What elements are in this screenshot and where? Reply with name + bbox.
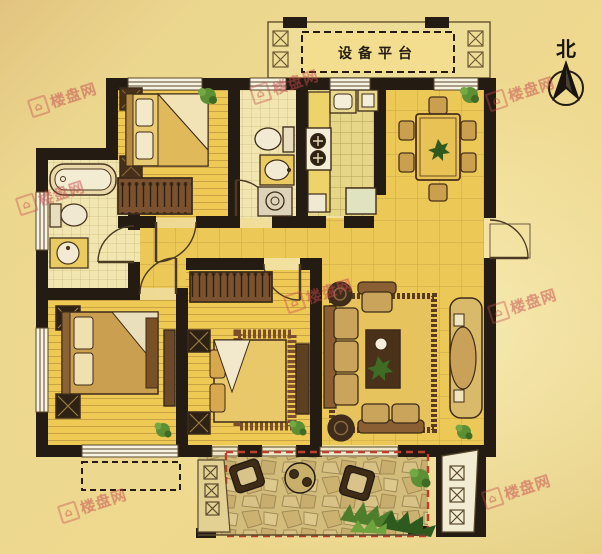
corner-structure [442, 450, 478, 532]
sofa [324, 306, 358, 408]
kitchen-sink [330, 90, 378, 113]
window-kitchen [330, 78, 370, 90]
toilet [255, 127, 294, 152]
north-compass-icon: 北 [549, 37, 583, 105]
wardrobe [118, 178, 192, 214]
window-master-bottom [82, 445, 178, 457]
bed [62, 312, 158, 394]
bed [126, 94, 208, 166]
bathroom-2 [255, 127, 294, 216]
bathroom-sink [50, 238, 88, 268]
equipment-platform: 设备平台 [268, 17, 490, 78]
coffee-table [366, 330, 400, 388]
floorplan-image: 设备平台 北 [0, 0, 602, 554]
terrace-left-structure [198, 460, 230, 532]
stove [306, 128, 331, 170]
dresser [164, 330, 175, 406]
dining-table [416, 114, 460, 180]
terrace-table [285, 463, 315, 493]
wardrobe [190, 272, 272, 302]
washing-machine [258, 187, 292, 216]
window-bathroom-2 [250, 78, 286, 90]
bed [210, 334, 292, 426]
tv-cabinet [450, 298, 482, 418]
toilet [50, 204, 87, 227]
bathroom-sink [260, 155, 294, 185]
armchair [358, 282, 396, 312]
side-table [328, 415, 354, 441]
door-entrance [490, 220, 530, 258]
side-table [328, 282, 352, 306]
dresser [296, 344, 309, 414]
north-label: 北 [556, 37, 576, 61]
bay-window [82, 462, 180, 490]
living-room [324, 282, 482, 441]
window-master-left [36, 328, 48, 412]
window-bathroom-1 [36, 192, 48, 250]
floorplan-svg: 设备平台 北 [0, 0, 602, 554]
fridge [346, 188, 376, 214]
equipment-platform-label: 设备平台 [338, 45, 418, 62]
bathtub [50, 164, 116, 195]
kitchen-cabinet [308, 194, 326, 212]
